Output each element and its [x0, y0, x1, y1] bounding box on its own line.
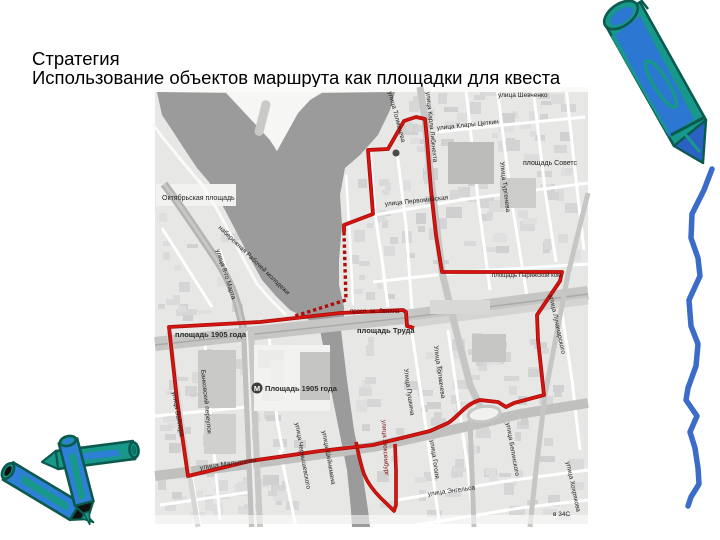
svg-text:площадь Парижской ком: площадь Парижской ком [492, 272, 561, 279]
svg-text:в 34С: в 34С [553, 511, 570, 518]
svg-text:Октябрьская площадь: Октябрьская площадь [162, 194, 235, 202]
svg-text:М: М [254, 384, 260, 393]
svg-text:Площадь 1905 года: Площадь 1905 года [265, 384, 338, 393]
svg-text:улица Шевченко: улица Шевченко [498, 92, 548, 99]
svg-text:площадь Труда: площадь Труда [357, 326, 415, 335]
svg-text:просп. ак. Ленина: просп. ак. Ленина [350, 309, 400, 315]
svg-text:площадь 1905 года: площадь 1905 года [175, 330, 247, 339]
svg-text:площадь Советс: площадь Советс [523, 160, 578, 167]
